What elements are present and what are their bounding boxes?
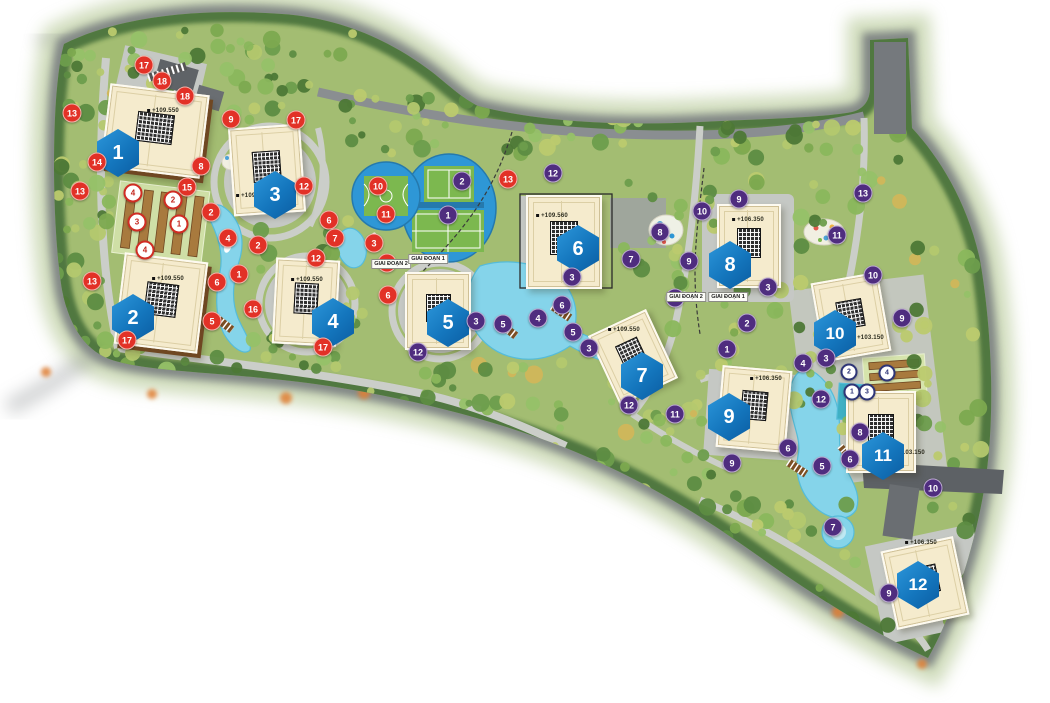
- tree: [83, 217, 96, 230]
- tree: [618, 139, 627, 148]
- tree: [141, 114, 156, 129]
- tree: [858, 168, 867, 177]
- tree: [268, 344, 277, 353]
- tree: [345, 134, 358, 147]
- tree: [936, 592, 945, 601]
- tree: [890, 441, 905, 456]
- tree: [596, 447, 610, 461]
- tree: [507, 362, 519, 374]
- tree: [954, 571, 961, 578]
- tree: [97, 68, 105, 76]
- tree: [65, 198, 73, 206]
- tree: [935, 421, 946, 432]
- tree: [79, 160, 88, 169]
- tree: [794, 322, 806, 334]
- tree: [420, 390, 436, 406]
- tree: [131, 31, 148, 48]
- tree: [892, 194, 907, 209]
- tree: [845, 120, 861, 136]
- tree: [921, 321, 929, 329]
- tree: [687, 476, 702, 491]
- tree: [567, 133, 576, 142]
- tree: [825, 381, 833, 389]
- tree: [524, 123, 535, 134]
- tree: [805, 387, 814, 396]
- tree: [715, 358, 728, 371]
- tree: [193, 114, 200, 121]
- tree: [71, 224, 79, 232]
- tree: [53, 190, 64, 201]
- tree: [964, 291, 971, 298]
- tree: [927, 502, 939, 514]
- tree: [793, 209, 810, 226]
- tree: [813, 330, 822, 339]
- tree: [265, 101, 281, 117]
- tree: [127, 53, 141, 67]
- tree: [348, 29, 357, 38]
- tree: [122, 324, 134, 336]
- tree: [948, 502, 957, 511]
- tree: [838, 497, 854, 513]
- tree: [734, 282, 751, 299]
- tree: [816, 584, 824, 592]
- tree: [950, 279, 959, 288]
- tree: [77, 74, 87, 84]
- tree: [97, 277, 105, 285]
- tree: [903, 391, 912, 400]
- tree: [733, 199, 742, 208]
- tree: [256, 265, 265, 274]
- tree: [837, 422, 850, 435]
- tree: [413, 140, 431, 158]
- tree: [431, 374, 441, 384]
- tree: [98, 100, 113, 115]
- tree: [893, 155, 903, 165]
- tree: [877, 176, 886, 185]
- tree: [478, 362, 493, 377]
- tree: [793, 275, 808, 290]
- tree: [331, 361, 342, 372]
- tree: [63, 99, 76, 112]
- tree: [666, 427, 675, 436]
- tree: [729, 400, 739, 410]
- tree: [181, 27, 188, 34]
- tree: [556, 424, 564, 432]
- tree: [108, 27, 117, 36]
- tree: [499, 393, 515, 409]
- tree: [966, 327, 980, 341]
- tree: [696, 416, 707, 427]
- tree: [699, 498, 716, 515]
- tree: [710, 147, 720, 157]
- tree: [933, 551, 948, 566]
- tree: [253, 222, 269, 238]
- tree: [681, 452, 693, 464]
- tree: [88, 175, 105, 192]
- tree: [809, 215, 821, 227]
- tree: [63, 226, 71, 234]
- tree: [320, 299, 334, 313]
- tree: [767, 302, 784, 319]
- tree: [342, 215, 354, 227]
- tree: [518, 362, 528, 372]
- tree: [98, 213, 114, 229]
- tree: [226, 44, 235, 53]
- tree: [708, 406, 716, 414]
- tree: [748, 150, 764, 166]
- tree: [902, 549, 919, 566]
- tree: [648, 192, 658, 202]
- tree: [71, 61, 82, 72]
- tree: [97, 331, 115, 349]
- tree: [826, 364, 836, 374]
- tree: [698, 449, 710, 461]
- tree: [67, 48, 76, 57]
- tree: [210, 350, 225, 365]
- tree: [271, 73, 279, 81]
- tree: [277, 85, 288, 96]
- tree: [909, 303, 923, 317]
- tree: [244, 41, 254, 51]
- tree: [210, 39, 225, 54]
- tree: [621, 374, 631, 384]
- tree: [806, 525, 817, 536]
- tree: [690, 410, 697, 417]
- tree: [772, 282, 789, 299]
- tree: [820, 143, 833, 156]
- tree: [226, 105, 242, 121]
- tree: [845, 385, 860, 400]
- tree: [956, 521, 974, 539]
- tree: [904, 440, 915, 451]
- tree: [709, 219, 718, 228]
- tree: [419, 367, 432, 380]
- tree: [914, 390, 932, 408]
- tree: [260, 245, 277, 262]
- tree: [526, 397, 540, 411]
- tree: [128, 67, 140, 79]
- tree: [406, 94, 414, 102]
- tree: [77, 104, 95, 122]
- tree: [756, 254, 768, 266]
- tree: [87, 293, 104, 310]
- tree: [182, 340, 190, 348]
- tree: [910, 241, 925, 256]
- tree: [93, 321, 101, 329]
- tree: [720, 301, 728, 309]
- pergola-garden-a: [112, 181, 210, 263]
- tree: [357, 308, 368, 319]
- tree: [574, 491, 584, 501]
- tree: [323, 227, 335, 239]
- tree: [407, 102, 420, 115]
- tree: [554, 407, 569, 422]
- tree: [549, 485, 563, 499]
- tree: [744, 496, 761, 513]
- tree: [916, 416, 932, 432]
- tree: [324, 50, 332, 58]
- tree: [674, 276, 688, 290]
- tree: [519, 142, 528, 151]
- tree: [644, 352, 652, 360]
- tree: [71, 181, 88, 198]
- tree: [311, 363, 322, 374]
- tree: [608, 398, 615, 405]
- tree: [381, 145, 389, 153]
- tree: [550, 135, 561, 146]
- tree: [181, 357, 190, 366]
- tree: [257, 78, 273, 94]
- tree: [346, 286, 360, 300]
- site-plan-stage: +109.550+109.550+109.550+109.550+109.560…: [0, 0, 1050, 703]
- tree: [305, 81, 313, 89]
- tree: [923, 570, 937, 584]
- tree: [246, 332, 261, 347]
- tree: [245, 115, 255, 125]
- tree: [744, 421, 752, 429]
- tree: [556, 357, 567, 368]
- tree: [653, 414, 666, 427]
- tree: [775, 365, 787, 377]
- tree: [607, 375, 622, 390]
- tree: [422, 118, 430, 126]
- tree: [653, 365, 665, 377]
- tree: [809, 180, 818, 189]
- tree: [239, 81, 252, 94]
- tree: [852, 144, 863, 155]
- tree: [210, 24, 223, 37]
- tree: [625, 179, 633, 187]
- tree: [333, 47, 347, 61]
- tree: [261, 58, 275, 72]
- tree: [905, 592, 914, 601]
- tree: [64, 71, 71, 78]
- tree: [640, 431, 653, 444]
- tree: [724, 225, 732, 233]
- tree: [907, 354, 922, 369]
- tree: [660, 435, 672, 447]
- tree: [323, 245, 341, 263]
- tree: [271, 334, 278, 341]
- tree: [442, 121, 449, 128]
- tree: [960, 443, 969, 452]
- tree: [730, 490, 742, 502]
- tree: [880, 617, 895, 632]
- tree: [278, 102, 286, 110]
- tree: [705, 195, 714, 204]
- tree: [128, 46, 136, 54]
- tree: [805, 351, 817, 363]
- tree: [220, 62, 235, 77]
- tree: [98, 120, 109, 131]
- tree: [815, 189, 830, 204]
- tree: [189, 48, 205, 64]
- tree: [314, 327, 323, 336]
- tree: [354, 89, 367, 102]
- tree: [733, 131, 746, 144]
- tree: [316, 350, 331, 365]
- tree: [611, 345, 624, 358]
- tree: [964, 258, 980, 274]
- tree: [782, 508, 794, 520]
- tree: [299, 360, 309, 370]
- tree: [249, 103, 261, 115]
- tree: [633, 261, 650, 278]
- tree: [730, 523, 741, 534]
- tree: [730, 328, 738, 336]
- tree: [449, 384, 456, 391]
- tree: [681, 402, 699, 420]
- tree: [724, 342, 740, 358]
- tree: [618, 424, 635, 441]
- tree: [902, 403, 916, 417]
- tree: [824, 119, 840, 135]
- tree: [912, 582, 924, 594]
- tree: [339, 99, 353, 113]
- tree: [263, 31, 281, 49]
- tree: [349, 117, 356, 124]
- tree: [847, 197, 865, 215]
- tree: [620, 462, 630, 472]
- tree: [929, 246, 939, 256]
- tree: [973, 441, 990, 458]
- tree: [706, 470, 716, 480]
- tree: [721, 121, 735, 135]
- tree: [794, 238, 810, 254]
- tree: [915, 602, 925, 612]
- basketball-court: [352, 162, 420, 230]
- tree: [917, 366, 932, 381]
- tree: [674, 199, 688, 213]
- tree: [389, 120, 402, 133]
- tree: [549, 476, 559, 486]
- tree: [638, 419, 649, 430]
- tree: [125, 346, 140, 361]
- tree: [672, 244, 683, 255]
- tree: [422, 92, 435, 105]
- tree: [430, 139, 439, 148]
- tree: [289, 50, 297, 58]
- tree: [107, 89, 115, 97]
- tree: [53, 159, 69, 175]
- tree: [670, 468, 678, 476]
- tree: [102, 195, 116, 209]
- tree: [237, 38, 245, 46]
- tree: [647, 236, 656, 245]
- tree: [812, 121, 820, 129]
- tree: [708, 414, 723, 429]
- tree: [592, 134, 609, 151]
- tree: [909, 253, 921, 265]
- tree: [722, 504, 732, 514]
- tree: [339, 310, 356, 327]
- tree: [789, 124, 802, 137]
- tree: [84, 50, 96, 62]
- tree: [933, 451, 942, 460]
- tree: [758, 529, 766, 537]
- tree: [113, 350, 120, 357]
- tree: [66, 262, 81, 277]
- tree: [289, 353, 296, 360]
- tree: [231, 362, 242, 373]
- tree: [847, 310, 855, 318]
- tree: [371, 95, 379, 103]
- tree: [896, 573, 903, 580]
- tree: [787, 529, 801, 543]
- tree: [358, 131, 365, 138]
- tree: [472, 394, 490, 412]
- site-plan-svg: [0, 0, 1050, 703]
- tree: [804, 143, 813, 152]
- tree: [839, 549, 850, 560]
- tree: [444, 103, 459, 118]
- tree: [261, 351, 272, 362]
- tree: [294, 331, 308, 345]
- tree: [900, 330, 912, 342]
- tree: [959, 410, 975, 426]
- tree: [819, 219, 827, 227]
- tree: [850, 557, 861, 568]
- tree: [806, 369, 814, 377]
- tree: [664, 320, 681, 337]
- tree: [696, 370, 706, 380]
- tree: [751, 179, 761, 189]
- tree: [696, 561, 705, 570]
- tree: [618, 242, 630, 254]
- tree: [785, 391, 803, 409]
